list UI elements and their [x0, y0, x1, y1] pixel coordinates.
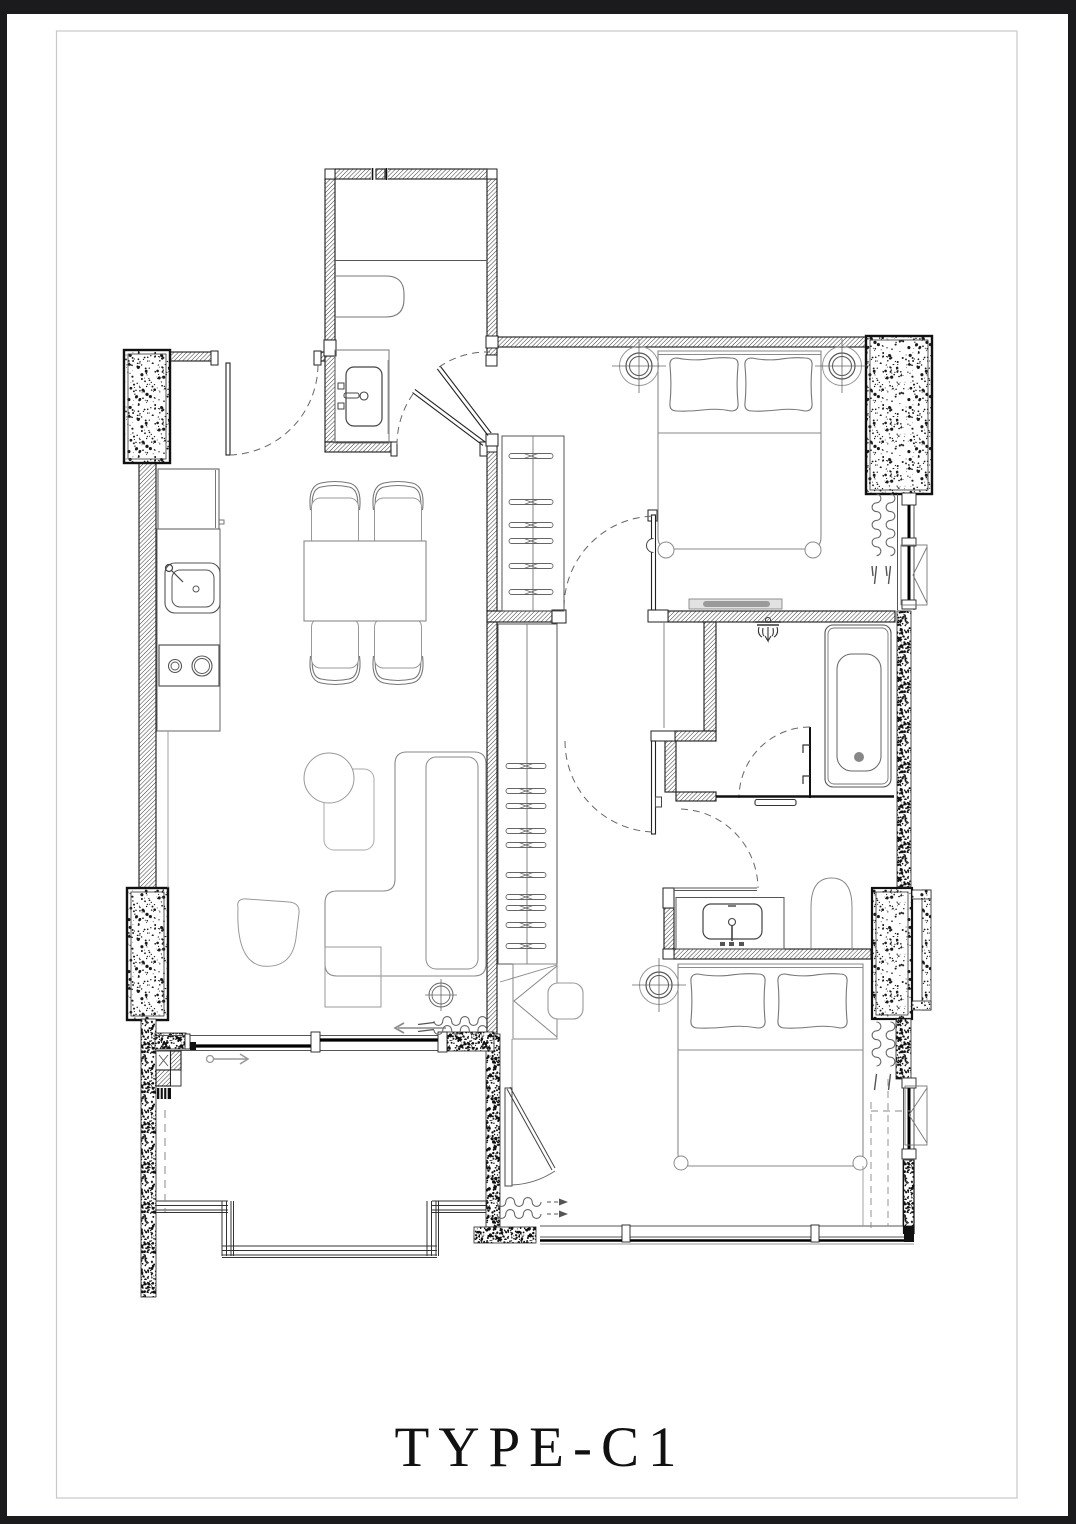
svg-text:TYPE-C1: TYPE-C1 [395, 1416, 686, 1479]
